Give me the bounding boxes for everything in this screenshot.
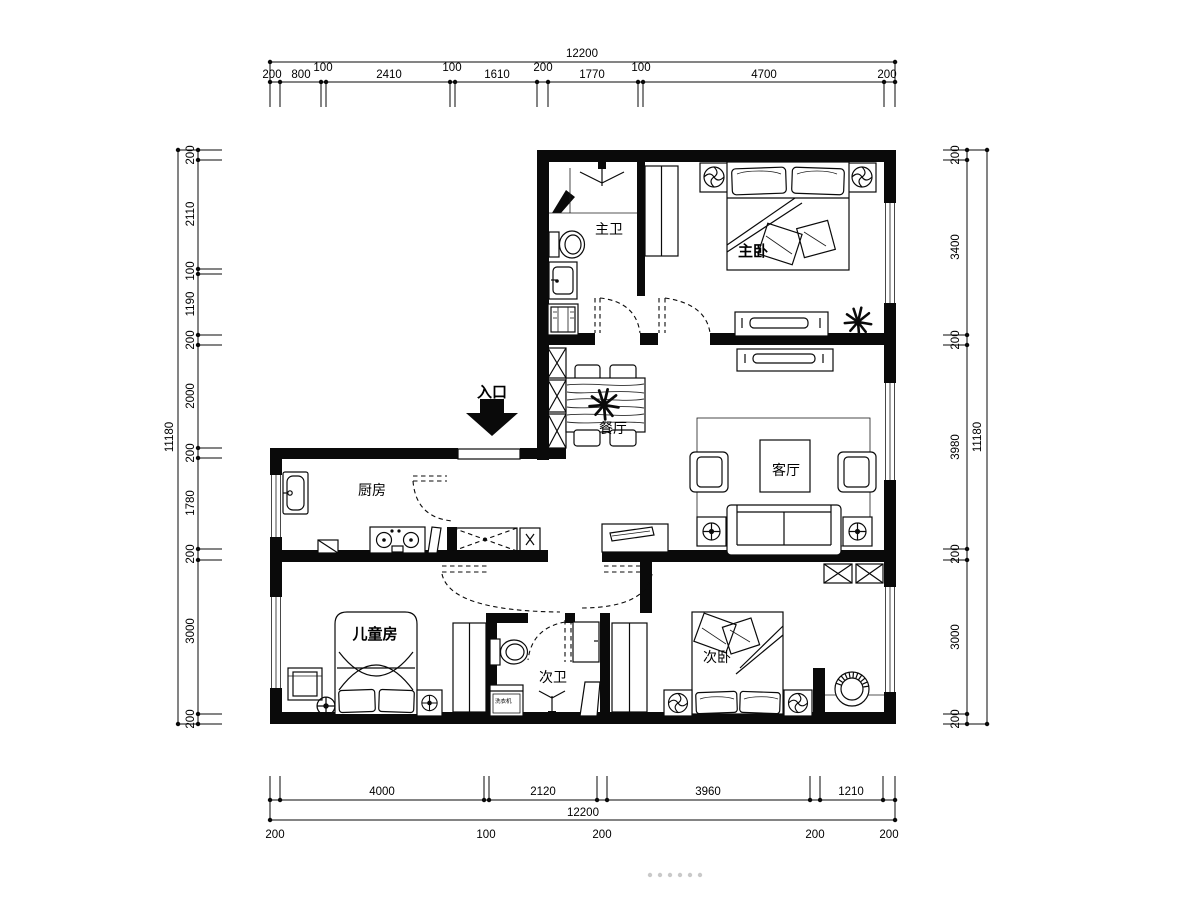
kitchen-sink — [283, 472, 308, 514]
dim-top-total: 12200 — [566, 48, 598, 60]
dresser-bedroom — [735, 312, 828, 336]
label-entrance: 入口 — [477, 384, 507, 401]
shower-corner-wall — [552, 190, 575, 213]
bathroom-cabinet — [548, 304, 578, 335]
label-master-bedroom: 主卧 — [738, 242, 768, 260]
watermark-dots — [648, 873, 702, 877]
dim-bottom-total: 12200 — [567, 807, 599, 819]
dim-top-5: 1610 — [484, 69, 510, 81]
dim-top-0: 200 — [262, 69, 281, 81]
dim-left-1: 2110 — [185, 202, 197, 227]
entry-threshold — [458, 449, 520, 459]
dim-bottom-l3: 200 — [805, 829, 824, 841]
window-kids-room — [272, 597, 281, 688]
dim-right-1: 3400 — [950, 234, 962, 260]
toilet-icon — [549, 231, 585, 258]
dimension-chain-bottom: 4000 2120 3960 1210 12200 200 100 200 20… — [265, 776, 898, 841]
dim-top-3: 2410 — [376, 69, 402, 81]
dim-left-0: 200 — [185, 145, 197, 164]
floor-lamp-icon — [317, 697, 335, 715]
room-kids: 儿童房 — [288, 612, 486, 716]
corridor-doors — [442, 566, 652, 612]
dim-bottom-l0: 200 — [265, 829, 284, 841]
dim-left-8: 200 — [185, 544, 197, 563]
label-master-bath: 主卫 — [595, 221, 623, 237]
floor-plan-drawing: 12200 200 800 100 2410 100 1610 200 1770… — [0, 0, 1200, 900]
label-kitchen: 厨房 — [358, 482, 386, 498]
dim-left-4: 200 — [185, 330, 197, 349]
dim-left-9: 3000 — [185, 618, 197, 644]
kitchen-door-swing — [413, 476, 453, 521]
dim-bottom-u3: 1210 — [838, 786, 864, 798]
room-master-bedroom: 主卧 — [645, 162, 876, 336]
shower-door-panel — [573, 622, 599, 662]
kids-chair — [288, 668, 322, 700]
master-bath-door-swing — [595, 298, 640, 333]
dim-bottom-u2: 3960 — [695, 786, 721, 798]
kids-nightstand — [417, 690, 442, 716]
window-second-bedroom — [886, 587, 895, 692]
toilet-icon — [490, 639, 528, 665]
hall-cabinet — [453, 528, 540, 551]
dim-left-10: 200 — [185, 709, 197, 728]
dim-top-6: 200 — [533, 62, 552, 74]
window-kitchen — [272, 475, 281, 537]
dim-bottom-l4: 200 — [879, 829, 898, 841]
bathroom-sink — [549, 262, 577, 299]
window-master-bedroom — [886, 203, 895, 303]
dim-right-3: 3980 — [950, 434, 962, 460]
side-table-left — [697, 517, 726, 546]
kids-room-door-swing — [442, 566, 560, 612]
round-chair — [825, 672, 884, 706]
dim-top-10: 200 — [877, 69, 896, 81]
shower-head-icon — [580, 162, 624, 186]
tv-cabinet — [602, 524, 668, 552]
dim-left-3: 1190 — [185, 292, 197, 317]
dimension-chain-left: 11180 200 2110 100 1190 200 2000 200 178… — [164, 145, 222, 728]
dim-bottom-l1: 100 — [476, 829, 495, 841]
nightstand-right — [784, 690, 812, 716]
side-table-right — [843, 517, 872, 546]
kitchen-door-leaf — [428, 527, 441, 553]
dim-top-7: 1770 — [579, 69, 605, 81]
dim-top-2: 100 — [313, 62, 332, 74]
dim-right-total: 11180 — [972, 422, 984, 452]
nightstand-left — [664, 690, 692, 716]
dim-right-6: 200 — [950, 709, 962, 728]
dresser-living-side — [737, 349, 833, 371]
dim-top-1: 800 — [291, 69, 310, 81]
kitchen-corner-unit — [318, 540, 338, 553]
dining-chair — [574, 430, 600, 446]
master-bedroom-door-swing — [659, 298, 710, 333]
dim-bottom-u0: 4000 — [369, 786, 395, 798]
label-second-bath: 次卫 — [539, 669, 567, 685]
label-washer: 洗衣机 — [495, 697, 512, 705]
armchair-right — [838, 452, 876, 492]
dimension-chain-top: 12200 200 800 100 2410 100 1610 200 1770… — [262, 48, 896, 107]
label-kids-room: 儿童房 — [351, 625, 397, 643]
dim-left-total: 11180 — [164, 422, 176, 452]
entrance-area: 入口 — [458, 384, 520, 459]
room-master-bath: 主卫 — [548, 162, 640, 335]
second-bath-door-swing — [528, 620, 571, 662]
room-living: 客厅 — [602, 418, 876, 555]
sofa — [727, 505, 841, 555]
stove-icon — [370, 527, 425, 553]
dim-left-6: 200 — [185, 443, 197, 462]
dim-left-7: 1780 — [185, 490, 197, 516]
dim-bottom-u1: 2120 — [530, 786, 556, 798]
window-living-room — [886, 383, 895, 480]
floor-plan-canvas: 12200 200 800 100 2410 100 1610 200 1770… — [0, 0, 1200, 900]
dim-right-5: 3000 — [950, 624, 962, 650]
plant-icon — [845, 308, 871, 336]
dim-left-2: 100 — [185, 261, 197, 280]
dim-right-4: 200 — [950, 544, 962, 563]
room-kitchen: 厨房 — [283, 472, 453, 553]
leaning-door-panel — [580, 682, 600, 716]
room-second-bath: 洗衣机 次卫 — [490, 620, 600, 717]
room-dining: 餐厅 — [566, 365, 645, 446]
label-living: 客厅 — [772, 462, 800, 478]
dimension-chain-right: 11180 200 3400 200 3980 200 3000 200 — [943, 145, 987, 728]
washing-machine: 洗衣机 — [490, 685, 523, 716]
armchair-left — [690, 452, 728, 492]
dim-top-9: 4700 — [751, 69, 777, 81]
entry-arrow-icon — [466, 399, 518, 436]
label-second-bedroom: 次卧 — [703, 649, 731, 665]
dim-top-4: 100 — [442, 62, 461, 74]
nightstand-right — [848, 163, 876, 192]
dim-bottom-l2: 200 — [592, 829, 611, 841]
dim-top-8: 100 — [631, 62, 650, 74]
dim-left-5: 2000 — [185, 383, 197, 409]
nightstand-left — [700, 163, 728, 192]
label-dining: 餐厅 — [599, 420, 627, 436]
dim-right-2: 200 — [950, 330, 962, 349]
dim-right-0: 200 — [950, 145, 962, 164]
